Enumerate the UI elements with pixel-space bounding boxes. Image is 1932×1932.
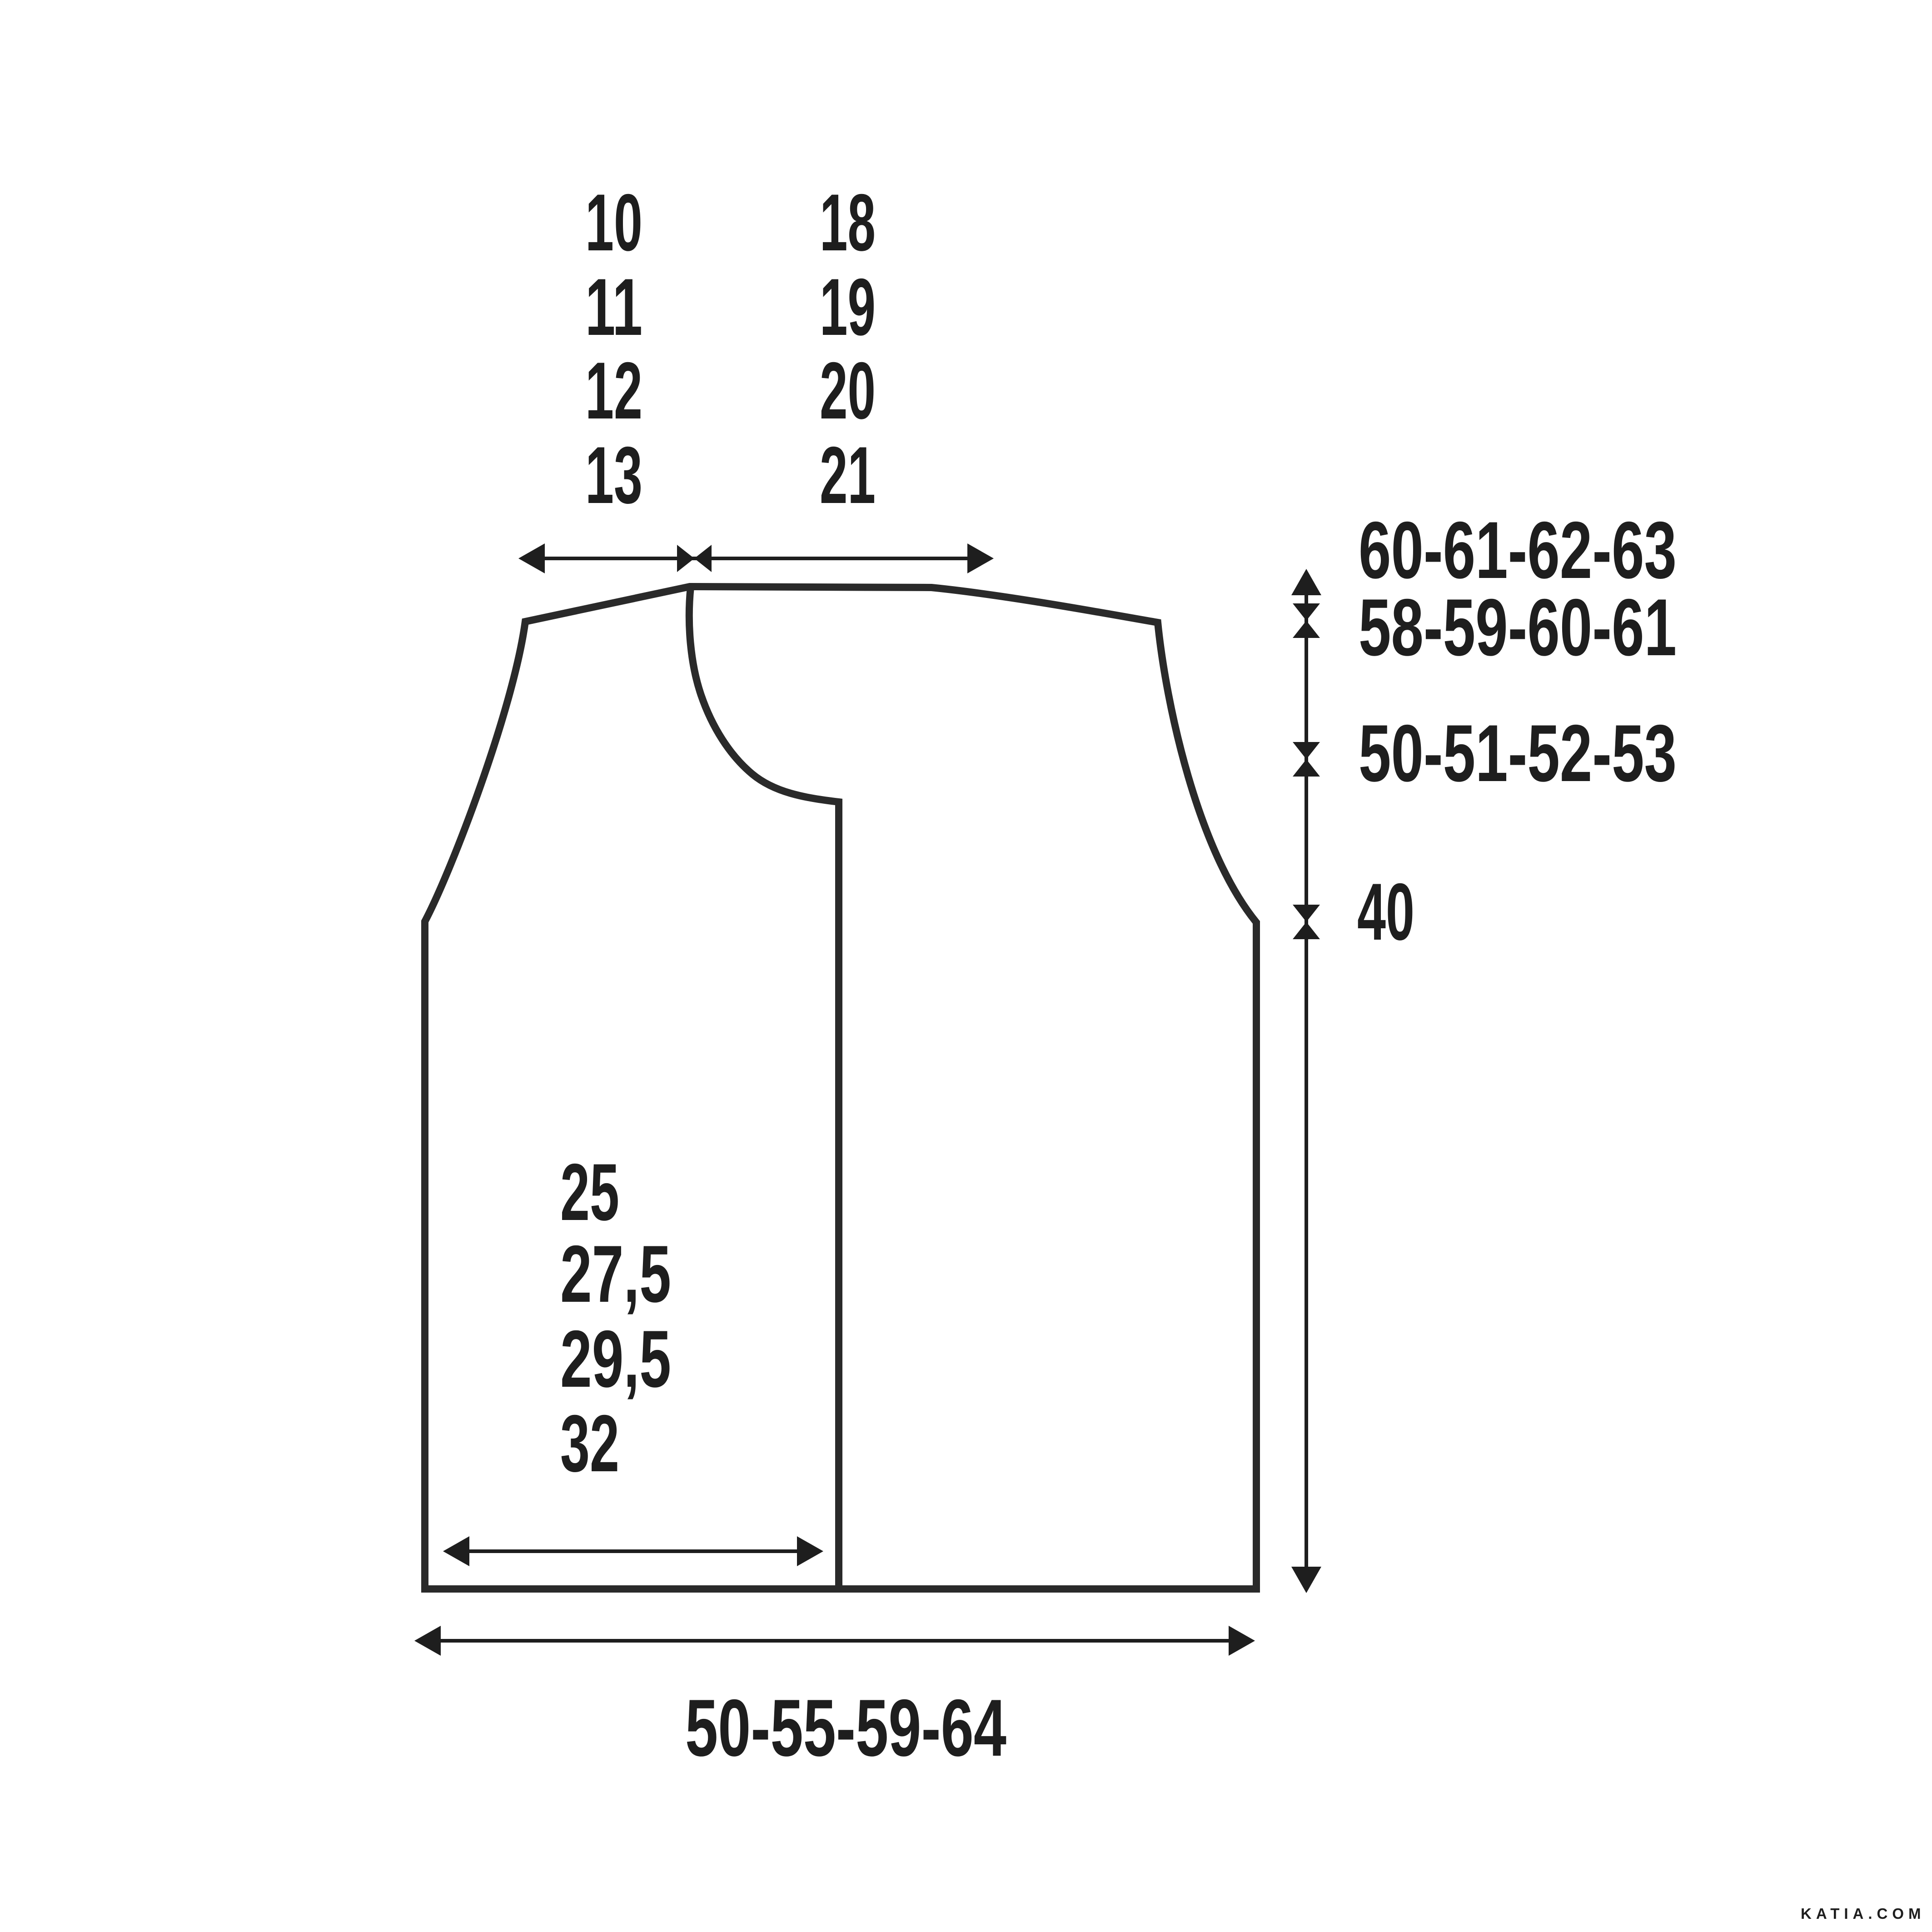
svg-text:12: 12: [585, 345, 642, 436]
svg-text:18: 18: [820, 177, 876, 268]
svg-text:50-55-59-64: 50-55-59-64: [685, 1683, 1006, 1773]
svg-text:58-59-60-61: 58-59-60-61: [1359, 582, 1677, 672]
svg-text:10: 10: [585, 177, 642, 268]
svg-text:KATIA.COM: KATIA.COM: [1801, 1905, 1926, 1922]
svg-text:19: 19: [820, 262, 876, 352]
svg-text:25: 25: [560, 1147, 619, 1237]
svg-text:11: 11: [585, 262, 642, 352]
svg-text:32: 32: [560, 1398, 619, 1489]
svg-text:13: 13: [585, 430, 642, 520]
svg-text:29,5: 29,5: [560, 1314, 671, 1404]
svg-text:20: 20: [820, 345, 876, 436]
svg-text:50-51-52-53: 50-51-52-53: [1359, 708, 1677, 798]
svg-text:40: 40: [1357, 866, 1414, 957]
svg-text:21: 21: [820, 430, 876, 520]
svg-text:27,5: 27,5: [560, 1229, 671, 1319]
